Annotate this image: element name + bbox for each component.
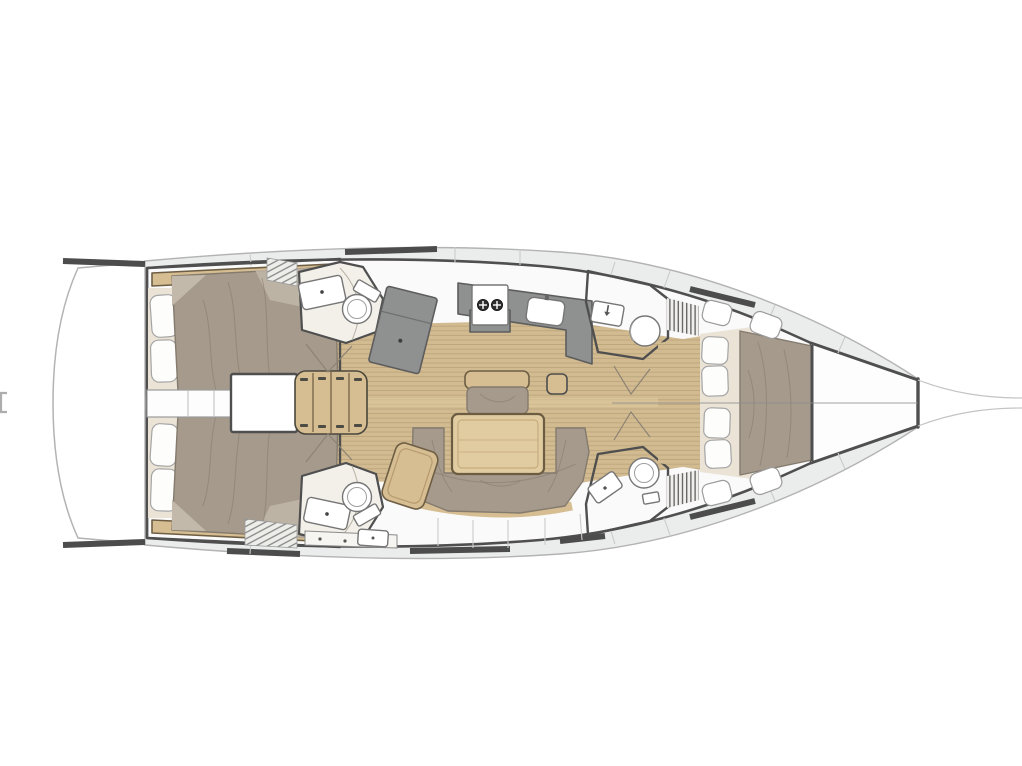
faucet-icon	[545, 294, 550, 300]
side-table	[642, 492, 659, 505]
mast-step	[547, 374, 567, 394]
boat-floor-plan-canvas	[0, 0, 1022, 766]
bench-cushion	[467, 387, 528, 414]
transom-rail-top	[63, 261, 145, 264]
pillow	[704, 439, 731, 468]
pillow	[701, 336, 728, 364]
companionway-stairs	[295, 371, 367, 434]
basin	[357, 529, 388, 547]
engine-compartment	[231, 374, 297, 432]
stove-burner-icon	[477, 299, 488, 310]
head-sink	[590, 301, 624, 327]
counter-knob	[343, 539, 346, 542]
pillow	[150, 340, 177, 383]
swim-platform	[53, 262, 146, 544]
stove	[472, 285, 508, 325]
counter-knob	[318, 537, 321, 540]
toilet	[629, 458, 659, 488]
pillow	[701, 366, 728, 397]
salon-table	[452, 414, 544, 474]
pillow	[150, 423, 179, 467]
shower-basin	[630, 316, 660, 346]
yacht-deck-plan	[0, 0, 1022, 766]
engine-corridor	[147, 390, 234, 417]
transom-rail-bottom	[63, 542, 145, 545]
pillow	[703, 408, 730, 439]
stove-burner-icon	[491, 299, 502, 310]
